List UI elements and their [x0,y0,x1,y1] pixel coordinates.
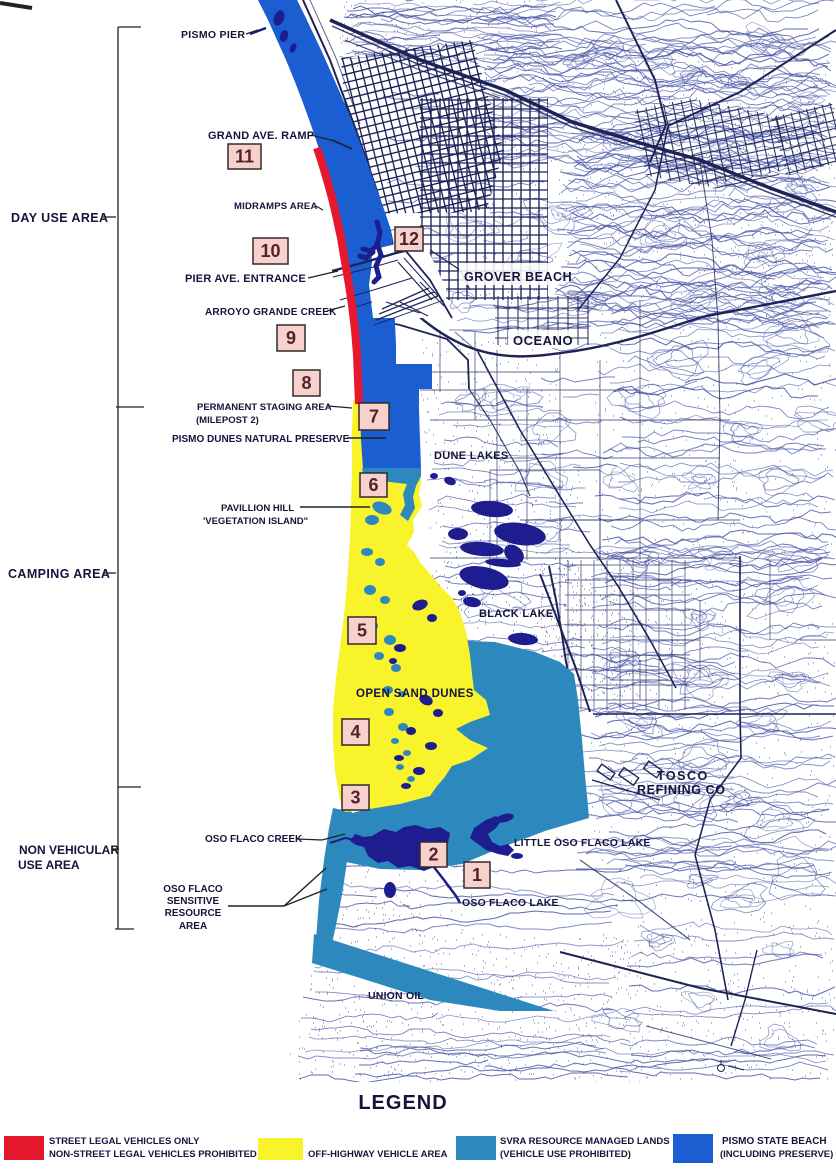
svg-text:7: 7 [369,407,379,427]
svg-text:11: 11 [235,147,254,167]
svg-text:SVRA RESOURCE MANAGED LANDS: SVRA RESOURCE MANAGED LANDS [500,1136,670,1147]
svg-text:OCEANO: OCEANO [513,333,573,348]
svg-text:2: 2 [428,845,438,865]
svg-text:OPEN SAND DUNES: OPEN SAND DUNES [356,688,474,700]
svg-text:PISMO DUNES NATURAL PRESERVE: PISMO DUNES NATURAL PRESERVE [172,434,350,445]
svg-text:SENSITIVE: SENSITIVE [167,896,220,907]
svg-text:AREA: AREA [179,921,207,932]
svg-text:12: 12 [399,229,419,249]
svg-text:GROVER BEACH: GROVER BEACH [464,270,572,284]
svg-text:PISMO STATE BEACH: PISMO STATE BEACH [722,1136,827,1147]
svg-text:ARROYO GRANDE CREEK: ARROYO GRANDE CREEK [205,307,337,318]
svg-text:RESOURCE: RESOURCE [165,908,222,919]
svg-text:8: 8 [301,373,311,393]
svg-text:1: 1 [472,865,482,885]
svg-text:NON VEHICULAR: NON VEHICULAR [19,843,119,857]
svg-text:USE AREA: USE AREA [18,858,80,872]
svg-text:STREET LEGAL VEHICLES ONLY: STREET LEGAL VEHICLES ONLY [49,1136,200,1147]
svg-text:PERMANENT STAGING AREA: PERMANENT STAGING AREA [197,402,332,413]
svg-text:NON-STREET LEGAL VEHICLES PROH: NON-STREET LEGAL VEHICLES PROHIBITED [49,1149,257,1160]
svg-text:DUNE LAKES: DUNE LAKES [434,450,509,462]
svg-text:'VEGETATION ISLAND": 'VEGETATION ISLAND" [203,516,308,527]
svg-text:PAVILLION HILL: PAVILLION HILL [221,503,294,514]
svg-text:BLACK LAKE: BLACK LAKE [479,608,554,620]
svg-text:(INCLUDING PRESERVE): (INCLUDING PRESERVE) [720,1149,833,1160]
svg-text:10: 10 [260,241,280,261]
svg-text:PIER AVE. ENTRANCE: PIER AVE. ENTRANCE [185,273,306,285]
svg-text:REFINING CO: REFINING CO [637,783,726,797]
svg-text:LITTLE OSO FLACO LAKE: LITTLE OSO FLACO LAKE [514,837,651,849]
svg-text:6: 6 [368,475,378,495]
svg-text:OSO FLACO CREEK: OSO FLACO CREEK [205,834,303,845]
svg-text:CAMPING AREA: CAMPING AREA [8,567,110,581]
svg-text:UNION OIL: UNION OIL [368,990,424,1002]
svg-text:LEGEND: LEGEND [358,1092,447,1114]
svg-text:PISMO PIER: PISMO PIER [181,29,245,41]
svg-text:3: 3 [350,788,360,808]
svg-text:(MILEPOST 2): (MILEPOST 2) [196,415,259,426]
svg-text:OSO FLACO: OSO FLACO [163,884,223,895]
svg-text:GRAND AVE. RAMP: GRAND AVE. RAMP [208,130,314,142]
svg-text:TOSCO: TOSCO [657,769,709,783]
svg-text:5: 5 [357,621,367,641]
svg-text:MIDRAMPS AREA: MIDRAMPS AREA [234,201,318,212]
svg-text:(VEHICLE USE PROHIBITED): (VEHICLE USE PROHIBITED) [500,1149,631,1160]
svg-text:9: 9 [286,328,296,348]
svg-text:4: 4 [350,722,360,742]
svg-text:OFF-HIGHWAY VEHICLE AREA: OFF-HIGHWAY VEHICLE AREA [308,1149,448,1160]
svg-text:DAY USE AREA: DAY USE AREA [11,211,108,225]
svg-text:OSO FLACO LAKE: OSO FLACO LAKE [462,897,559,909]
